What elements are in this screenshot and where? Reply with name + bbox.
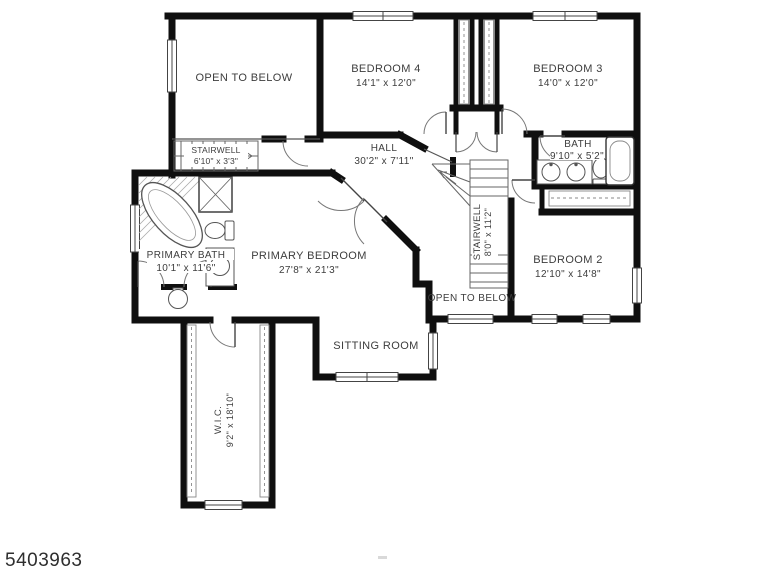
room-dims-wic: 9'2" x 18'10" (225, 393, 235, 448)
watermark-listing-id: 5403963 (5, 550, 82, 571)
floor-plan-drawing: OPEN TO BELOW BEDROOM 4 14'1" x 12'0" BE… (0, 0, 768, 576)
room-label-hall: HALL (371, 143, 398, 154)
toilet (205, 221, 234, 240)
room-dims-bedroom-4: 14'1" x 12'0" (356, 78, 416, 89)
room-label-bedroom-3: BEDROOM 3 (533, 63, 603, 75)
room-dims-hall: 30'2" x 7'11" (354, 156, 413, 167)
room-dims-primary-bedroom: 27'8" x 21'3" (279, 265, 339, 276)
room-dims-stairwell-small: 6'10" x 3'3" (194, 156, 238, 166)
room-dims-bath: 9'10" x 5'2" (550, 151, 604, 162)
shower (199, 177, 232, 212)
floor-plan-page: OPEN TO BELOW BEDROOM 4 14'1" x 12'0" BE… (0, 0, 768, 576)
stray-mark (378, 556, 387, 559)
double-vanity (537, 160, 592, 184)
room-label-primary-bath: PRIMARY BATH (147, 250, 226, 261)
room-label-sitting-room: SITTING ROOM (333, 340, 418, 352)
room-label-open-to-below-lower: OPEN TO BELOW (428, 293, 517, 304)
room-dims-primary-bath: 10'1" x 11'6" (156, 263, 215, 274)
room-label-stairwell-main: STAIRWELL (472, 204, 483, 261)
room-label-stairwell-small: STAIRWELL (191, 145, 240, 155)
room-label-open-to-below-upper: OPEN TO BELOW (195, 72, 292, 84)
room-dims-bedroom-3: 14'0" x 12'0" (538, 78, 598, 89)
room-label-bath: BATH (564, 139, 592, 150)
room-dims-bedroom-2: 12'10" x 14'8" (535, 269, 601, 280)
bathtub (606, 137, 634, 185)
room-label-primary-bedroom: PRIMARY BEDROOM (251, 250, 367, 262)
room-label-bedroom-2: BEDROOM 2 (533, 254, 603, 266)
room-label-bedroom-4: BEDROOM 4 (351, 63, 421, 75)
room-label-wic: W.I.C. (213, 406, 224, 434)
pedestal-sink (169, 288, 188, 309)
room-dims-stairwell-main: 8'0" x 11'2" (483, 208, 493, 257)
